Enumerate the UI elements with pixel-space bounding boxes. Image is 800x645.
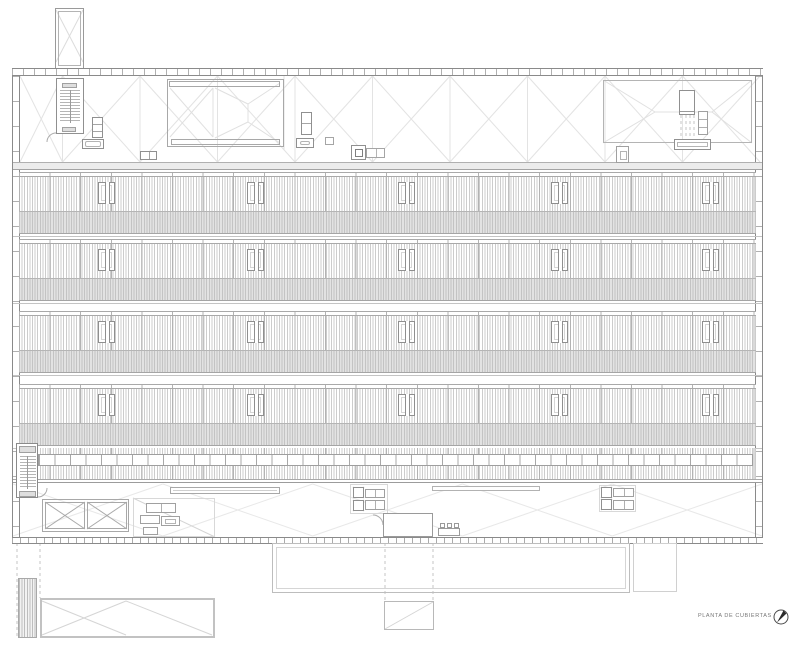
roof-band-1-eave-line [13,236,762,237]
fan-unit-x [353,500,364,511]
skylight-band3-3 [398,321,415,343]
skylight-mullion [254,249,259,271]
skylight-mullion [105,394,110,416]
stair-stringer [27,456,28,489]
roof-plan-drawing: PLANTA DE CUBIERTAS [0,0,800,645]
canopy-extension [384,601,434,630]
skylight-mullion [558,182,563,204]
skylight-band4-1 [98,394,115,416]
skylight-mullion [254,394,259,416]
canopy-southwest [40,598,215,638]
skylight-mullion [405,182,410,204]
skylight-band2-2 [247,249,264,271]
roof-band-2-corrugation [19,244,756,278]
ramp-hatch [18,578,37,638]
skylight-band3-5 [702,321,719,343]
fan-unit-x [601,499,612,510]
skylight-mullion [709,249,714,271]
roof-band-2-eave-line [13,303,762,304]
skylight-mullion [254,321,259,343]
skylight-mullion [558,394,563,416]
ac-unit [146,503,176,513]
fan-bank-base [438,528,460,536]
skylight-band1-2 [247,182,264,204]
skylight-band1-4 [551,182,568,204]
ac-unit [140,515,160,524]
xbrace-cell [87,502,127,529]
skylight-mullion [709,394,714,416]
skylight-band3-1 [98,321,115,343]
ac-unit [365,489,385,498]
fan-unit-x [353,487,364,498]
ac-unit [365,500,385,510]
skylight-band2-3 [398,249,415,271]
skylight-mullion [709,182,714,204]
skylight-mullion [105,182,110,204]
stair-treads [20,456,36,489]
skylight-band2-4 [551,249,568,271]
roof-band-1-corrugation [19,177,756,211]
ac-unit [161,516,180,526]
skylight-mullion [105,249,110,271]
ac-unit [613,488,634,497]
skylight-mullion [105,321,110,343]
roof-band-1-lower-slope [19,211,756,234]
drawing-title: PLANTA DE CUBIERTAS [698,613,758,619]
clerestory-window-strip [38,454,753,466]
stair-tower [16,443,38,498]
skylight-mullion [405,394,410,416]
fan [447,523,452,528]
skylight-band3-4 [551,321,568,343]
skylight-band4-2 [247,394,264,416]
roof-band-4-corrugation [19,389,756,423]
ac-unit [143,527,158,535]
roof-band-4-lower-slope [19,423,756,446]
skylight-band4-3 [398,394,415,416]
skylight-band1-5 [702,182,719,204]
skylight-band4-5 [702,394,719,416]
roof-band-2-lower-slope [19,278,756,301]
linear-rooflight [170,487,280,494]
skylight-band3-2 [247,321,264,343]
roof-band-3-eave-line [13,375,762,376]
roof-band-5-eave-line [13,479,762,483]
canopy-south [272,543,630,593]
skylight-band1-3 [398,182,415,204]
fan-unit-x [601,487,612,498]
roof-band-3-lower-slope [19,350,756,373]
skylight-band4-4 [551,394,568,416]
skylight-mullion [405,321,410,343]
skylight-mullion [558,249,563,271]
ac-unit [613,500,634,510]
skylight-band2-1 [98,249,115,271]
skylight-band1-1 [98,182,115,204]
elevation-label [19,491,36,497]
roof-band-3-corrugation [19,316,756,350]
xbrace-cell [45,502,85,529]
fan [454,523,459,528]
skylight-mullion [405,249,410,271]
rooftop-plant-room [383,513,433,537]
linear-rooflight [432,486,540,491]
fan [440,523,445,528]
skylight-band2-5 [702,249,719,271]
elevation-label [19,446,36,453]
skylight-mullion [709,321,714,343]
skylight-mullion [558,321,563,343]
skylight-mullion [254,182,259,204]
canopy-southeast [633,543,677,592]
